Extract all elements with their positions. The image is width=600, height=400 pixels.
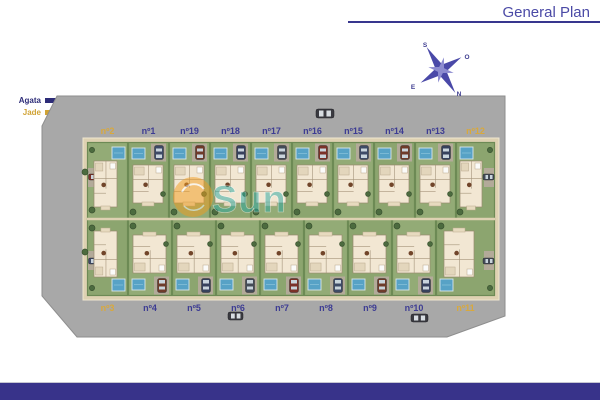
- plot-label-nº19: nº19: [180, 126, 199, 136]
- compass-letter-e: E: [411, 84, 416, 91]
- plot-label-nº3: nº3: [101, 303, 115, 313]
- plot-label-nº7: nº7: [275, 303, 289, 313]
- plot-label-nº1: nº1: [142, 126, 156, 136]
- plot-nº6: [217, 220, 260, 296]
- plot-label-nº17: nº17: [262, 126, 281, 136]
- plot-label-nº6: nº6: [231, 303, 245, 313]
- footer-bar: [0, 383, 600, 400]
- road-car-icon: [316, 109, 334, 118]
- plot-label-nº5: nº5: [187, 303, 201, 313]
- plot-nº10: [393, 220, 436, 296]
- plot-nº2: [88, 143, 128, 219]
- page: General Plan Agata Jade nº2nº1nº19nº18nº…: [0, 0, 600, 400]
- compass-letter-n: N: [457, 91, 462, 98]
- plot-label-nº8: nº8: [319, 303, 333, 313]
- road-car-icon: [228, 312, 243, 320]
- plot-label-nº18: nº18: [221, 126, 240, 136]
- plot-nº12: [457, 143, 495, 219]
- plot-label-nº4: nº4: [143, 303, 157, 313]
- plot-label-nº10: nº10: [405, 303, 424, 313]
- plot-nº7: [261, 220, 304, 296]
- plot-nº15: [334, 143, 374, 219]
- plot-label-nº12: nº12: [466, 126, 485, 136]
- road-car-icon: [411, 314, 428, 322]
- plot-label-nº13: nº13: [426, 126, 445, 136]
- plot-label-nº16: nº16: [303, 126, 322, 136]
- plot-label-nº9: nº9: [363, 303, 377, 313]
- plot-nº5: [173, 220, 216, 296]
- plot-nº11: [437, 220, 495, 296]
- watermark-text: Sun: [212, 179, 287, 221]
- compass-letter-o: O: [464, 54, 469, 61]
- plot-nº1: [129, 143, 169, 219]
- sun-logo-icon: [173, 177, 213, 217]
- plot-nº13: [416, 143, 456, 219]
- plot-nº16: [293, 143, 333, 219]
- watermark: Sun: [173, 177, 287, 221]
- plot-label-nº14: nº14: [385, 126, 404, 136]
- compass-rose-icon: S O E N: [406, 34, 475, 105]
- plot-nº8: [305, 220, 348, 296]
- plot-nº4: [129, 220, 172, 296]
- plot-nº9: [349, 220, 392, 296]
- compass-letter-s: S: [423, 42, 428, 49]
- compass-minor-star: [425, 54, 456, 85]
- site-plan: nº2nº1nº19nº18nº17nº16nº15nº14nº13nº12nº…: [0, 0, 600, 400]
- plot-nº3: [88, 220, 128, 296]
- plot-label-nº11: nº11: [456, 303, 474, 313]
- plot-nº14: [375, 143, 415, 219]
- plot-label-nº15: nº15: [344, 126, 363, 136]
- plot-label-nº2: nº2: [101, 126, 115, 136]
- plots-layer: [82, 143, 495, 296]
